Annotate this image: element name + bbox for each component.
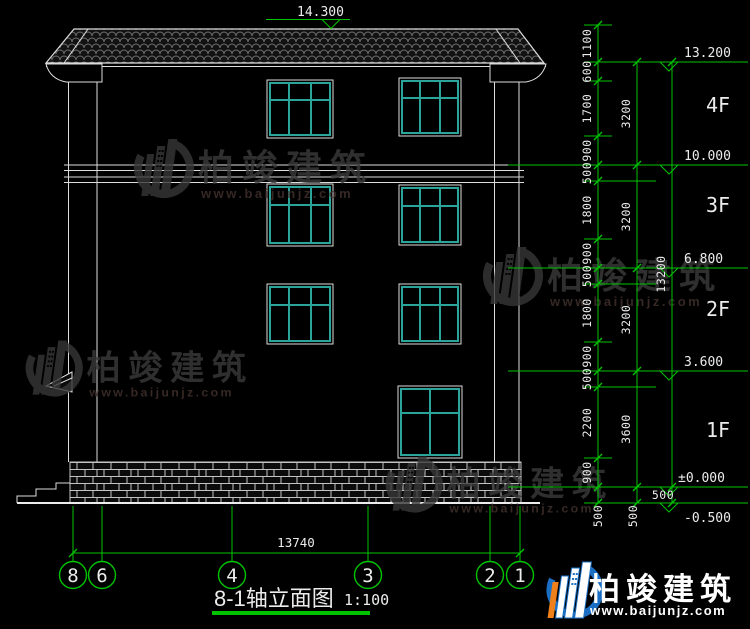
drawing-scale: 1:100: [344, 591, 389, 609]
elevation-value: 14.300: [297, 5, 344, 20]
cad-elevation-page: 柏竣建筑 www.baijunjz.com: [0, 0, 750, 629]
dim-value: 1100: [580, 29, 594, 59]
axis-number: 4: [226, 565, 237, 587]
floor-label: 1F: [706, 418, 730, 442]
drawing-title: 8-1轴立面图: [214, 586, 334, 611]
elevation-value: 6.800: [684, 252, 723, 267]
floor-label: 4F: [706, 93, 730, 117]
dim-value: 2200: [580, 408, 594, 438]
dim-value: 500: [580, 368, 594, 390]
dim-value: 1800: [580, 195, 594, 225]
dim-value: 500: [626, 505, 640, 527]
axis-number: 3: [362, 565, 373, 587]
elevation-value: ±0.000: [678, 471, 725, 486]
total-width-value: 13740: [277, 535, 315, 550]
brand-name: 柏竣建筑: [589, 572, 737, 607]
dim-value: 3600: [619, 414, 633, 444]
dim-value: 1700: [580, 94, 594, 124]
elevation-drawing: 柏竣建筑 www.baijunjz.com: [0, 0, 750, 629]
floor-label: 2F: [706, 297, 730, 321]
title-underline: [212, 611, 370, 615]
dim-value: 1800: [580, 298, 594, 328]
dim-value: 900: [580, 139, 594, 161]
dim-value: 3200: [619, 305, 633, 335]
axis-number: 2: [484, 565, 495, 587]
dim-value: 600: [580, 60, 594, 82]
roof-tile-band: [46, 29, 544, 63]
dim-value: 900: [580, 242, 594, 264]
dim-value: 3200: [619, 202, 633, 232]
dim-value: 500: [580, 162, 594, 184]
dim-value: 500: [591, 505, 605, 527]
axis-number: 8: [67, 565, 78, 587]
dim-value-total-height: 13200: [654, 255, 668, 292]
dim-value: 500: [580, 265, 594, 287]
dim-value: 3200: [619, 99, 633, 129]
elevation-value: -0.500: [684, 511, 731, 526]
floor-label: 3F: [706, 193, 730, 217]
dim-value: 900: [580, 461, 594, 483]
dim-value: 500: [652, 488, 674, 502]
elevation-value: 3.600: [684, 355, 723, 370]
elevation-value: 10.000: [684, 149, 731, 164]
brand-url: www.baijunjz.com: [589, 603, 726, 618]
elevation-value: 13.200: [684, 46, 731, 61]
axis-number: 6: [96, 565, 107, 587]
axis-number: 1: [514, 565, 525, 587]
dim-value: 900: [580, 345, 594, 367]
